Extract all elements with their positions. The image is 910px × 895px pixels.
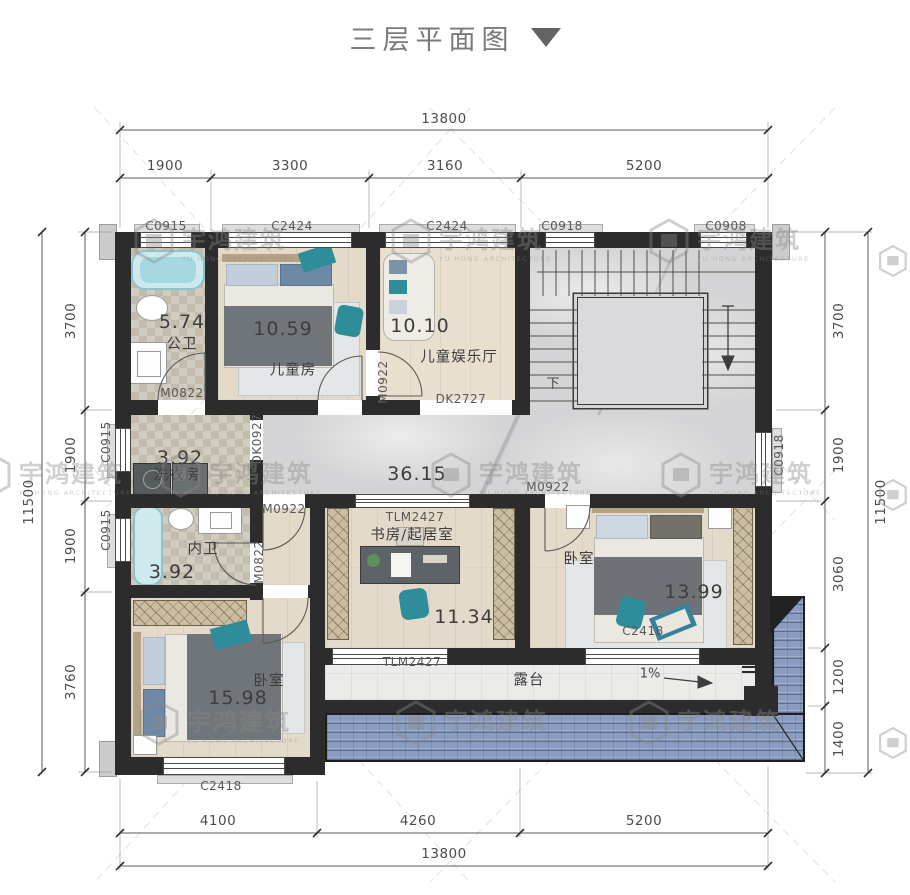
dimension-ticks bbox=[38, 126, 872, 870]
dim-bottom-seg: 4260 bbox=[400, 813, 436, 829]
dim-right-seg: 1200 bbox=[831, 659, 847, 695]
door-label: TLM2427 bbox=[386, 510, 444, 524]
dim-top-seg: 1900 bbox=[147, 158, 183, 174]
dim-right-seg: 3700 bbox=[831, 303, 847, 339]
room-name: 儿童房 bbox=[270, 359, 317, 380]
extension-lines bbox=[78, 122, 872, 870]
roof-lines bbox=[742, 596, 804, 761]
room-area: 10.59 bbox=[253, 318, 312, 340]
window-label: C2424 bbox=[271, 219, 312, 233]
room-area: 13.99 bbox=[664, 581, 723, 603]
dim-left-seg: 1900 bbox=[63, 437, 79, 473]
door-arcs bbox=[158, 352, 590, 643]
door-label: M0822 bbox=[160, 386, 203, 400]
dim-right-seg: 1400 bbox=[831, 721, 847, 757]
stair-down-arrow bbox=[722, 306, 734, 370]
door-label: M0822 bbox=[252, 540, 266, 583]
dimension-lines bbox=[42, 130, 868, 866]
door-label: M0922 bbox=[376, 360, 390, 403]
window-label: C0915 bbox=[145, 219, 186, 233]
room-name: 露台 bbox=[514, 669, 545, 690]
window-label: C0908 bbox=[705, 219, 746, 233]
door-label: M0922 bbox=[262, 502, 305, 516]
page-title: 三层平面图 bbox=[350, 18, 515, 57]
dim-right-overall: 11500 bbox=[873, 479, 889, 524]
window-label: C0915 bbox=[99, 421, 113, 462]
window-label: C0918 bbox=[541, 219, 582, 233]
dim-top-seg: 3300 bbox=[272, 158, 308, 174]
door-label: DK0927 bbox=[250, 414, 264, 465]
room-name: 书房/起居室 bbox=[370, 524, 453, 545]
room-area: 10.10 bbox=[390, 315, 449, 337]
door-label: TLM2427 bbox=[383, 655, 441, 669]
room-name: 内卫 bbox=[188, 538, 219, 559]
room-name: 儿童娱乐厅 bbox=[420, 346, 498, 367]
room-area: 36.15 bbox=[387, 463, 446, 485]
room-area: 15.98 bbox=[208, 687, 267, 709]
dim-bottom-overall: 13800 bbox=[421, 846, 466, 862]
triangle-down-icon bbox=[531, 28, 561, 47]
window-label: C2418 bbox=[200, 779, 241, 793]
stair-treads bbox=[530, 250, 755, 401]
room-area: 3.92 bbox=[149, 561, 195, 583]
dim-left-overall: 11500 bbox=[21, 479, 37, 524]
stairs-down-label: 下 bbox=[546, 373, 559, 392]
dim-bottom-seg: 5200 bbox=[626, 813, 662, 829]
dim-top-overall: 13800 bbox=[421, 111, 466, 127]
room-name: 卧室 bbox=[564, 548, 595, 569]
window-label: C0918 bbox=[772, 434, 786, 475]
dim-left-seg: 3700 bbox=[63, 303, 79, 339]
room-name: 公卫 bbox=[167, 333, 198, 354]
room-area: 11.34 bbox=[434, 606, 493, 628]
door-label: M0922 bbox=[526, 480, 569, 494]
slope-arrow bbox=[664, 676, 712, 688]
dim-bottom-seg: 4100 bbox=[200, 813, 236, 829]
dim-top-seg: 3160 bbox=[427, 158, 463, 174]
window-label: C2424 bbox=[426, 219, 467, 233]
room-area: 5.74 bbox=[159, 311, 205, 333]
floor-plan-sheet: 三层平面图 bbox=[0, 0, 910, 895]
dim-left-seg: 1900 bbox=[63, 528, 79, 564]
dim-top-seg: 5200 bbox=[626, 158, 662, 174]
title-row: 三层平面图 bbox=[0, 18, 910, 57]
dim-left-seg: 3760 bbox=[63, 664, 79, 700]
room-name: 洗衣房 bbox=[154, 464, 201, 485]
window-label: C0915 bbox=[99, 509, 113, 550]
dim-right-seg: 1900 bbox=[831, 437, 847, 473]
dim-right-seg: 3060 bbox=[831, 556, 847, 592]
door-label: DK2727 bbox=[436, 392, 487, 406]
window-label: C2418 bbox=[622, 624, 663, 638]
slope-label: 1% bbox=[640, 667, 661, 682]
